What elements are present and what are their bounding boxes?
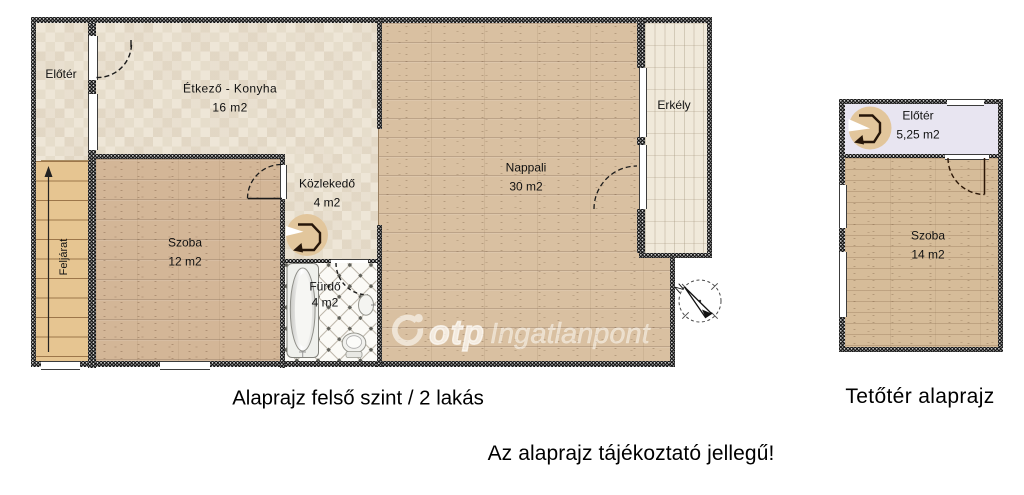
- svg-text:N: N: [673, 282, 687, 296]
